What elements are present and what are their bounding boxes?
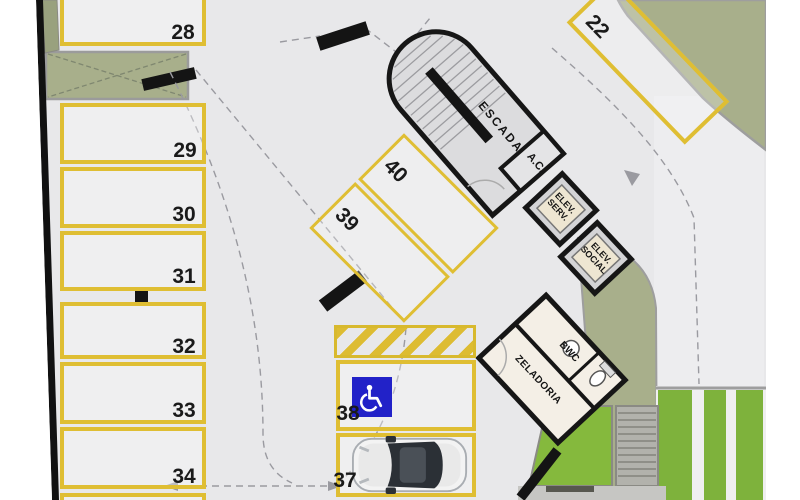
space-number: 28 [171,21,194,45]
space-number: 31 [172,265,195,289]
wall-hatch-strip [546,486,594,492]
space-number: 39 [330,203,363,236]
grass-strip [704,390,726,500]
space-number: 30 [172,203,195,227]
margin-right [766,0,800,500]
grate [616,406,658,486]
no-parking-hatch [334,325,476,358]
planting-strip [42,0,59,53]
garage-floor-plan: 28 29 30 31 32 33 34 40 39 22 38 37 [0,0,800,500]
car-top-view [346,436,474,494]
grass-strip [736,390,763,500]
grass-strip [658,390,692,500]
space-number: 40 [379,154,412,187]
parking-space-partial [60,493,206,500]
space-number: 38 [336,402,359,426]
space-number: 33 [172,399,195,423]
space-number: 34 [172,465,195,489]
space-number: 37 [333,469,356,493]
space-number: 32 [172,335,195,359]
space-number: 29 [173,139,196,163]
driveway [654,96,764,388]
